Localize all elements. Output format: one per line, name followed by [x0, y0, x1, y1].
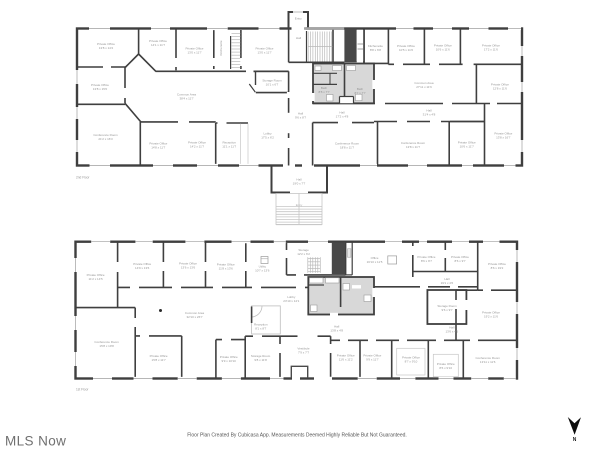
svg-text:9'6 x 9'7: 9'6 x 9'7: [442, 308, 453, 312]
svg-text:9'9 x 11'7: 9'9 x 11'7: [366, 358, 379, 362]
svg-text:15'8 x 19'8: 15'8 x 19'8: [99, 344, 114, 348]
svg-text:8'8 x 6'8: 8'8 x 6'8: [370, 48, 381, 52]
svg-text:18'8 x 11'7: 18'8 x 11'7: [340, 146, 354, 150]
svg-text:1st Floor: 1st Floor: [76, 388, 89, 392]
svg-text:14'8 x 11'7: 14'8 x 11'7: [151, 146, 165, 150]
svg-text:2nd Floor: 2nd Floor: [76, 176, 90, 180]
svg-text:9'8 x 11'8: 9'8 x 11'8: [254, 358, 267, 362]
svg-text:13'11 x 11'6: 13'11 x 11'6: [480, 360, 496, 364]
svg-text:27'11 x 11'6: 27'11 x 11'6: [416, 85, 432, 89]
svg-text:19'1 x 4'6: 19'1 x 4'6: [441, 281, 454, 285]
svg-text:16'10 x 11'5: 16'10 x 11'5: [367, 260, 383, 264]
svg-text:8'6 x 9'10: 8'6 x 9'10: [439, 366, 452, 370]
svg-text:9'9 x 10'10: 9'9 x 10'10: [222, 359, 237, 363]
svg-text:14'9 x 13'6: 14'9 x 13'6: [135, 266, 150, 270]
svg-text:10'6 x 11'6: 10'6 x 11'6: [436, 48, 450, 52]
svg-text:15'8 x 11'7: 15'8 x 11'7: [152, 358, 166, 362]
svg-text:8'6 x 19'2: 8'6 x 19'2: [491, 266, 504, 270]
svg-text:8'1 x 8'7: 8'1 x 8'7: [255, 326, 266, 330]
svg-text:Floor Plan Created By Cubicasa: Floor Plan Created By Cubicasa App. Meas…: [187, 433, 407, 439]
svg-text:Entry: Entry: [296, 203, 303, 207]
svg-text:38'4 x 11'7: 38'4 x 11'7: [179, 97, 193, 101]
svg-text:MLS Now: MLS Now: [5, 434, 66, 449]
svg-text:13'8 x 16'7: 13'8 x 16'7: [496, 136, 511, 140]
svg-text:Kitchenette: Kitchenette: [219, 40, 223, 55]
svg-text:14'1 x 11'7: 14'1 x 11'7: [151, 43, 165, 47]
svg-text:14'2 x 11'7: 14'2 x 11'7: [190, 145, 204, 149]
svg-text:13'8 x 4'8: 13'8 x 4'8: [330, 329, 343, 333]
svg-text:8'6 x 9'7: 8'6 x 9'7: [455, 259, 466, 263]
svg-text:12'2 x 6'2: 12'2 x 6'2: [297, 252, 310, 256]
svg-text:9'6 x 8'7: 9'6 x 8'7: [295, 116, 306, 120]
svg-text:N: N: [573, 437, 577, 443]
svg-text:32'10 x 26'7: 32'10 x 26'7: [187, 315, 203, 319]
svg-text:8'7 x 7'7: 8'7 x 7'7: [355, 91, 366, 95]
svg-text:13'6 x 13'6: 13'6 x 13'6: [181, 265, 196, 269]
svg-text:11'8 x 13'6: 11'8 x 13'6: [219, 267, 233, 271]
svg-text:8'8 x 7'7: 8'8 x 7'7: [319, 90, 330, 94]
svg-text:13'8 x 15'0: 13'8 x 15'0: [93, 87, 108, 91]
svg-text:8'6 x 9'7: 8'6 x 9'7: [421, 259, 432, 263]
svg-text:Entry: Entry: [295, 17, 303, 21]
svg-text:13'8 x 14'2: 13'8 x 14'2: [99, 46, 114, 50]
svg-text:23'10 x 14'1: 23'10 x 14'1: [283, 299, 299, 303]
svg-text:19'2 x 11'6: 19'2 x 11'6: [484, 315, 498, 319]
svg-text:8'7 x 9'10: 8'7 x 9'10: [405, 359, 418, 363]
svg-text:10'6 x 11'7: 10'6 x 11'7: [460, 144, 474, 148]
svg-text:31'4 x 4'8: 31'4 x 4'8: [423, 113, 436, 117]
svg-text:17'5 x 6'2: 17'5 x 6'2: [261, 136, 274, 140]
svg-text:13'0 x 11'7: 13'0 x 11'7: [257, 51, 271, 55]
svg-text:12'8 x 11'6: 12'8 x 11'6: [493, 87, 507, 91]
svg-text:11'2 x 14'5: 11'2 x 14'5: [89, 277, 103, 281]
svg-text:21'2 x 16'3: 21'2 x 16'3: [98, 137, 113, 141]
svg-text:7'9 x 7'7: 7'9 x 7'7: [298, 350, 309, 354]
svg-text:13'6 x 4'6: 13'6 x 4'6: [445, 329, 458, 333]
svg-text:17'2 x 4'8: 17'2 x 4'8: [336, 115, 349, 119]
svg-text:13'0 x 11'7: 13'0 x 11'7: [187, 51, 201, 55]
svg-text:13'8 x 11'7: 13'8 x 11'7: [406, 145, 420, 149]
svg-text:10'7 x 13'6: 10'7 x 13'6: [255, 268, 270, 272]
svg-text:11'6 x 11'2: 11'6 x 11'2: [339, 358, 353, 362]
svg-text:17'2 x 11'6: 17'2 x 11'6: [484, 48, 498, 52]
svg-text:10'5 x 11'6: 10'5 x 11'6: [399, 48, 413, 52]
svg-text:11'1 x 11'7: 11'1 x 11'7: [222, 144, 236, 148]
svg-text:Hall: Hall: [296, 36, 302, 40]
svg-text:19'0 x 7'7: 19'0 x 7'7: [293, 182, 306, 186]
svg-text:10'1 x 6'7: 10'1 x 6'7: [266, 83, 279, 87]
